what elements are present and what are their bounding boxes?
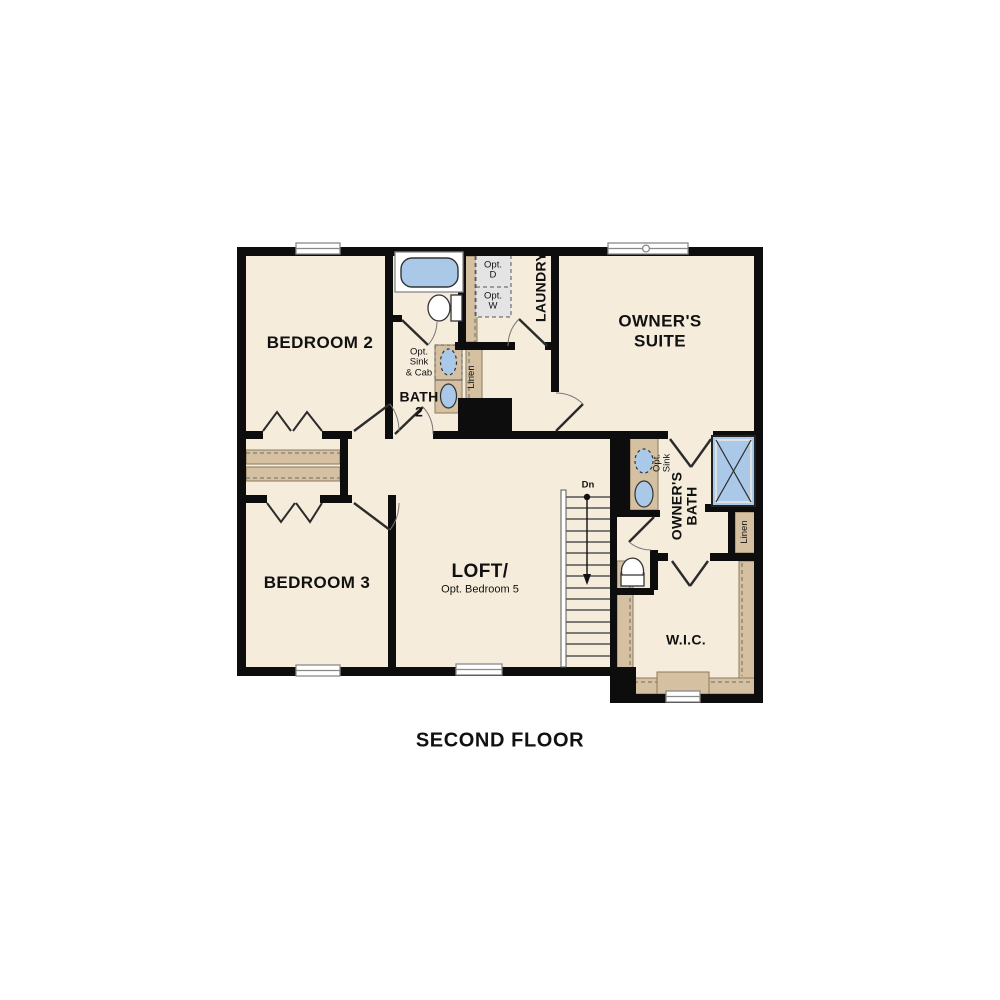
room-label-loft: LOFT/ — [452, 561, 509, 583]
note-opt-dryer: Opt. D — [484, 261, 502, 282]
window — [666, 691, 700, 702]
toilet-bath2 — [428, 295, 462, 321]
page-title: SECOND FLOOR — [416, 730, 584, 753]
note-linen-owners: Linen — [740, 520, 750, 543]
window — [296, 243, 340, 254]
note-opt-sink-cab: Opt. Sink & Cab — [406, 347, 432, 378]
room-label-owners-bath: OWNER'S BATH — [669, 472, 698, 540]
note-linen-bath2: Linen — [467, 365, 477, 388]
room-label-loft-option: Opt. Bedroom 5 — [441, 584, 519, 597]
room-label-wic: W.I.C. — [666, 633, 706, 648]
sink-bath2-optional — [441, 349, 457, 375]
window — [608, 243, 688, 254]
room-label-bedroom3: BEDROOM 3 — [264, 573, 371, 593]
floor-plan-page: BEDROOM 2 BEDROOM 3 OWNER'S SUITE LOFT/ … — [0, 0, 1000, 1000]
sink-owners — [635, 481, 653, 507]
sink-owners-optional — [635, 449, 653, 473]
shower — [712, 436, 755, 506]
room-label-laundry: LAUNDRY — [534, 252, 549, 322]
window — [456, 664, 502, 675]
note-opt-sink: Opt. Sink — [653, 454, 674, 472]
sink-bath2 — [441, 384, 457, 408]
note-opt-washer: Opt. W — [484, 292, 502, 313]
room-label-bedroom2: BEDROOM 2 — [267, 333, 374, 353]
bathtub — [395, 252, 463, 292]
room-label-owners-suite: OWNER'S SUITE — [618, 311, 701, 350]
note-stairs-down: Dn — [582, 481, 595, 492]
room-label-bath2: BATH 2 — [399, 389, 438, 418]
window — [296, 665, 340, 676]
floor-plan-drawing — [0, 0, 1000, 1000]
toilet-owners — [621, 558, 644, 586]
